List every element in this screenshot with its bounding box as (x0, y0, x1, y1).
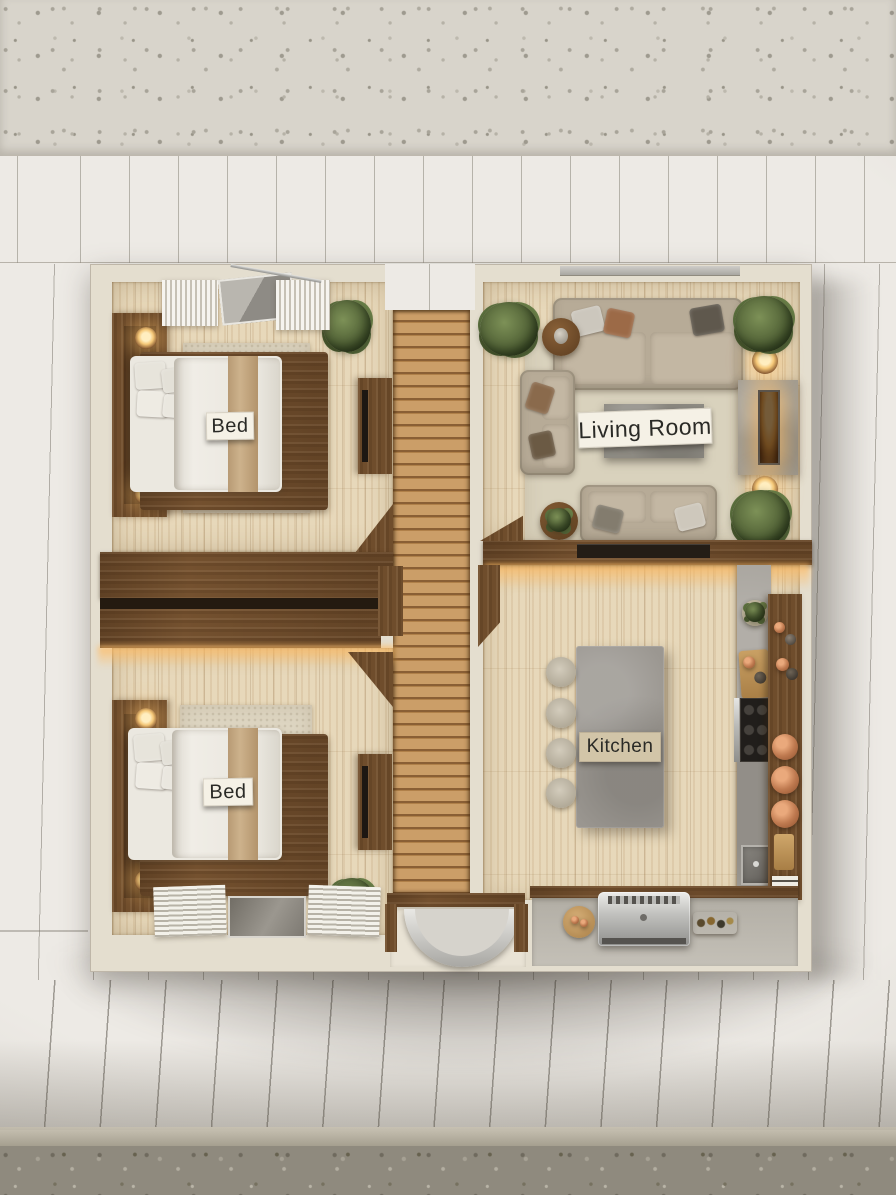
bedside-lamp (135, 327, 157, 349)
bedroom-bottom-tv-console (358, 754, 392, 850)
kitchen-sink (741, 845, 771, 885)
sofa-three-seat (553, 298, 743, 390)
living-room-plant (732, 490, 790, 546)
serving-board (563, 906, 595, 938)
table-plant (547, 508, 571, 532)
pillow (528, 430, 557, 460)
living-room-label-card: Living Room (577, 408, 712, 449)
tv-screen (362, 390, 368, 462)
small-board (774, 834, 794, 870)
living-room-plant (735, 296, 793, 352)
vase (554, 328, 568, 344)
bottle (774, 622, 785, 633)
wardrobe-lower-slab (100, 609, 381, 648)
entry-gap-top (385, 264, 475, 310)
board-bevel-edge (0, 1127, 896, 1147)
bedroom-top-tv-console (358, 378, 392, 474)
fireplace-flame (758, 390, 780, 465)
faucet (753, 861, 759, 867)
cooktop (740, 698, 771, 762)
bedroom-top-curtain (276, 280, 330, 330)
bedroom-bottom-window-glass (228, 896, 306, 938)
side-table-round (542, 318, 580, 356)
copper-pan-rack (768, 594, 802, 900)
model-shadow-right (808, 280, 870, 980)
living-room-window (560, 266, 740, 275)
bbq-grill (598, 892, 690, 946)
kitchen-divider-wall (483, 540, 812, 565)
loveseat (520, 370, 575, 475)
oven-handle (734, 698, 739, 762)
grill-knob (640, 914, 647, 921)
wardrobe-wall (100, 552, 393, 648)
sofa-cushion (650, 332, 735, 384)
pillow (689, 303, 725, 336)
grill-vent (608, 896, 680, 904)
bottle (785, 634, 796, 645)
tv-screen (362, 766, 368, 838)
wardrobe-gap (100, 598, 393, 609)
bar-stool (546, 657, 576, 687)
copper-pan (772, 734, 798, 760)
entry-door-pier-left (385, 904, 397, 952)
herb-plant (745, 602, 765, 622)
wardrobe-underlight (98, 646, 395, 668)
entry-arc-inner (415, 909, 509, 956)
living-room-label: Living Room (578, 412, 712, 444)
wardrobe-upper-slab (100, 552, 393, 598)
terrazzo-floor-bottom (0, 1146, 896, 1195)
fireplace (738, 380, 798, 475)
kitchen-label-card: Kitchen (579, 732, 661, 762)
kitchen-label: Kitchen (587, 736, 654, 758)
copper-pan (771, 766, 799, 794)
pillow (603, 307, 636, 338)
jar (754, 671, 767, 684)
side-table-round (540, 502, 578, 540)
bar-stool (546, 698, 576, 728)
terrazzo-floor-top (0, 0, 896, 156)
bedroom-top-label: Bed (211, 414, 248, 438)
cutting-board (738, 649, 771, 699)
copper-pan (771, 800, 799, 828)
tv-on-divider (577, 544, 710, 558)
grill-base (602, 938, 686, 944)
bedroom-top-plant (323, 300, 371, 352)
entry-door-header (387, 893, 525, 907)
living-room-plant (480, 302, 538, 356)
bedroom-top-curtain (162, 280, 218, 326)
bedside-lamp (135, 708, 157, 730)
bedroom-bottom-label: Bed (209, 780, 246, 804)
snack (580, 919, 588, 927)
floor-plan-model: Bed Bed (90, 264, 812, 972)
wardrobe-deck-connector (378, 566, 403, 636)
bedroom-bottom-label-card: Bed (203, 778, 253, 807)
bedroom-top-label-card: Bed (206, 412, 254, 441)
food-tray (693, 912, 737, 934)
bar-stool (546, 738, 576, 768)
bedroom-bottom-blind (153, 885, 227, 937)
deck-walkway (393, 310, 470, 893)
scene: Bed Bed (0, 0, 896, 1195)
sofa-two-seat (580, 485, 717, 543)
snack (571, 916, 579, 924)
bottle (786, 668, 798, 680)
pillow (674, 502, 707, 532)
bedroom-bottom-blind (307, 885, 381, 937)
bar-stool (546, 778, 576, 808)
board-line-in-gap (429, 264, 430, 310)
jar (743, 656, 756, 669)
entry-door-pier-right (514, 904, 528, 952)
